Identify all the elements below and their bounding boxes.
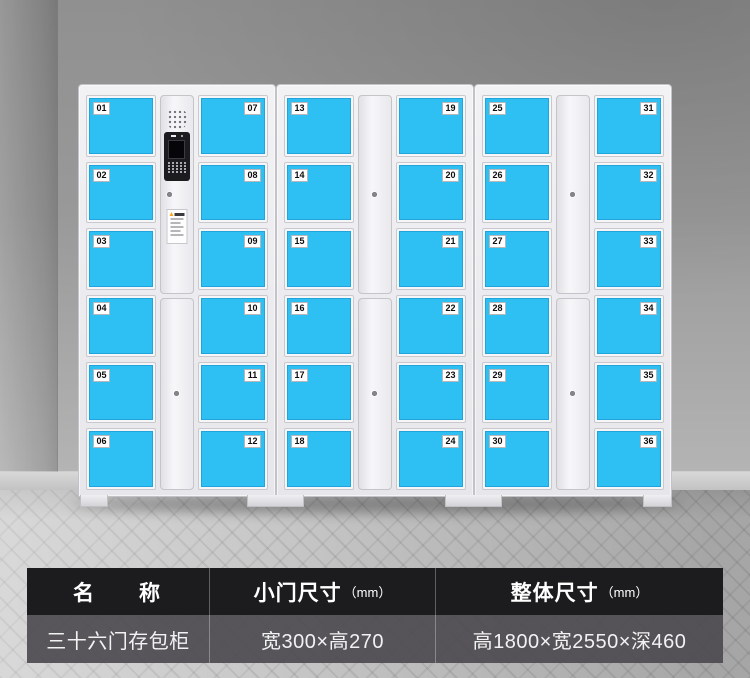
spec-value-row: 三十六门存包柜 宽300×高270 高1800×宽2550×深460 — [27, 615, 723, 663]
locker-door: 16 — [284, 295, 354, 357]
keypad-dot — [172, 165, 174, 167]
door-number-plate: 08 — [244, 169, 261, 182]
door-number-plate: 18 — [291, 435, 308, 448]
keypad-dot — [172, 162, 174, 164]
locker-door: 01 — [86, 95, 156, 157]
door-number-plate: 02 — [93, 169, 110, 182]
keypad-dot — [176, 168, 178, 170]
door-face: 24 — [399, 431, 463, 487]
keypad-dot — [168, 162, 170, 164]
door-column: 010203040506 — [86, 95, 156, 490]
door-face: 10 — [201, 298, 265, 354]
center-door-upper — [358, 95, 392, 294]
locker-door: 04 — [86, 295, 156, 357]
door-column: 192021222324 — [396, 95, 466, 490]
label-text-line — [171, 230, 181, 232]
door-number-plate: 14 — [291, 169, 308, 182]
door-face: 32 — [597, 165, 661, 221]
locker-door: 09 — [198, 228, 268, 290]
lock-icon — [174, 391, 179, 396]
locker-foot — [80, 495, 108, 507]
label-text-line — [171, 226, 184, 228]
spec-value-overall-size: 高1800×宽2550×深460 — [435, 615, 723, 663]
locker-door: 15 — [284, 228, 354, 290]
door-number-plate: 21 — [442, 235, 459, 248]
door-face: 11 — [201, 365, 265, 421]
locker-door: 33 — [594, 228, 664, 290]
door-face: 05 — [89, 365, 153, 421]
locker-door: 10 — [198, 295, 268, 357]
door-number-plate: 27 — [489, 235, 506, 248]
locker-door: 25 — [482, 95, 552, 157]
door-column: 252627282930 — [482, 95, 552, 490]
center-door-upper — [556, 95, 590, 294]
locker-shadow — [70, 496, 684, 513]
door-number-plate: 16 — [291, 302, 308, 315]
door-face: 08 — [201, 165, 265, 221]
locker-foot — [643, 495, 672, 507]
keypad-dot — [176, 165, 178, 167]
door-number-plate: 11 — [244, 369, 261, 382]
door-column: 131415161718 — [284, 95, 354, 490]
keypad-dot — [184, 168, 186, 170]
door-face: 27 — [485, 231, 549, 287]
door-number-plate: 35 — [640, 369, 657, 382]
door-number-plate: 13 — [291, 102, 308, 115]
locker-door: 21 — [396, 228, 466, 290]
keypad-dot — [172, 171, 174, 173]
center-door-lower — [160, 298, 194, 490]
locker-door: 07 — [198, 95, 268, 157]
door-column: 070809101112 — [198, 95, 268, 490]
indicator-light-icon — [167, 135, 187, 138]
door-number-plate: 15 — [291, 235, 308, 248]
lock-icon — [570, 391, 575, 396]
keypad-dot — [168, 168, 170, 170]
locker-door: 27 — [482, 228, 552, 290]
spec-header-door-size-unit: （mm） — [344, 582, 392, 601]
product-photo: 0102030405060708091011121314151617181920… — [0, 0, 750, 678]
display-screen — [168, 140, 185, 159]
center-door-lower — [556, 298, 590, 490]
locker-door: 30 — [482, 428, 552, 490]
door-face: 25 — [485, 98, 549, 154]
locker-door: 14 — [284, 162, 354, 224]
locker-cabinet: 252627282930313233343536 — [474, 84, 672, 497]
locker-door: 12 — [198, 428, 268, 490]
warning-icon — [170, 212, 185, 216]
center-column — [556, 95, 590, 490]
center-column — [358, 95, 392, 490]
door-face: 22 — [399, 298, 463, 354]
door-face: 04 — [89, 298, 153, 354]
door-face: 28 — [485, 298, 549, 354]
door-number-plate: 19 — [442, 102, 459, 115]
door-number-plate: 01 — [93, 102, 110, 115]
door-face: 26 — [485, 165, 549, 221]
door-number-plate: 29 — [489, 369, 506, 382]
door-face: 23 — [399, 365, 463, 421]
door-face: 34 — [597, 298, 661, 354]
spec-header-door-size: 小门尺寸（mm） — [209, 568, 435, 615]
door-face: 20 — [399, 165, 463, 221]
door-face: 14 — [287, 165, 351, 221]
wall-corner — [0, 0, 58, 474]
door-number-plate: 30 — [489, 435, 506, 448]
center-door-lower — [358, 298, 392, 490]
door-number-plate: 17 — [291, 369, 308, 382]
locker-cabinets: 0102030405060708091011121314151617181920… — [78, 84, 672, 497]
door-face: 33 — [597, 231, 661, 287]
door-face: 06 — [89, 431, 153, 487]
door-face: 13 — [287, 98, 351, 154]
door-face: 31 — [597, 98, 661, 154]
locker-door: 32 — [594, 162, 664, 224]
door-face: 30 — [485, 431, 549, 487]
spec-header-name-label: 名 称 — [73, 577, 161, 607]
locker-door: 17 — [284, 362, 354, 424]
label-text-line — [171, 222, 181, 224]
keypad-terminal — [164, 132, 190, 181]
control-panel — [160, 95, 194, 294]
locker-door: 34 — [594, 295, 664, 357]
instruction-label — [167, 209, 188, 244]
locker-door: 23 — [396, 362, 466, 424]
locker-door: 05 — [86, 362, 156, 424]
door-number-plate: 31 — [640, 102, 657, 115]
door-face: 19 — [399, 98, 463, 154]
door-number-plate: 25 — [489, 102, 506, 115]
door-number-plate: 04 — [93, 302, 110, 315]
locker-cabinet: 131415161718192021222324 — [276, 84, 474, 497]
spec-value-name: 三十六门存包柜 — [27, 615, 209, 663]
door-face: 17 — [287, 365, 351, 421]
locker-door: 22 — [396, 295, 466, 357]
spec-header-row: 名 称 小门尺寸（mm） 整体尺寸（mm） — [27, 568, 723, 615]
door-number-plate: 36 — [640, 435, 657, 448]
locker-door: 08 — [198, 162, 268, 224]
lock-icon — [372, 391, 377, 396]
spec-header-overall-size-label: 整体尺寸 — [511, 577, 599, 607]
keypad-dot — [184, 171, 186, 173]
door-face: 01 — [89, 98, 153, 154]
keypad-dot — [168, 165, 170, 167]
door-number-plate: 12 — [244, 435, 261, 448]
door-face: 02 — [89, 165, 153, 221]
door-face: 12 — [201, 431, 265, 487]
locker-foot — [445, 495, 502, 507]
locker-door: 20 — [396, 162, 466, 224]
keypad-dot — [180, 162, 182, 164]
speaker-grille-icon — [166, 108, 188, 130]
door-face: 09 — [201, 231, 265, 287]
keypad-dot — [180, 171, 182, 173]
door-number-plate: 03 — [93, 235, 110, 248]
keypad-dot — [176, 171, 178, 173]
label-text-line — [171, 234, 184, 236]
locker-door: 24 — [396, 428, 466, 490]
locker-door: 36 — [594, 428, 664, 490]
keypad-dot — [168, 171, 170, 173]
locker-door: 28 — [482, 295, 552, 357]
door-number-plate: 22 — [442, 302, 459, 315]
door-number-plate: 09 — [244, 235, 261, 248]
door-number-plate: 24 — [442, 435, 459, 448]
spec-header-overall-size: 整体尺寸（mm） — [435, 568, 723, 615]
center-column — [160, 95, 194, 490]
door-number-plate: 05 — [93, 369, 110, 382]
label-text-line — [171, 218, 184, 220]
locker-door: 03 — [86, 228, 156, 290]
spec-value-door-size: 宽300×高270 — [209, 615, 435, 663]
door-number-plate: 23 — [442, 369, 459, 382]
locker-door: 19 — [396, 95, 466, 157]
door-column: 313233343536 — [594, 95, 664, 490]
door-face: 16 — [287, 298, 351, 354]
locker-foot — [247, 495, 304, 507]
door-face: 15 — [287, 231, 351, 287]
keypad-dot — [184, 162, 186, 164]
door-face: 18 — [287, 431, 351, 487]
keypad-dot — [184, 165, 186, 167]
locker-door: 18 — [284, 428, 354, 490]
door-face: 03 — [89, 231, 153, 287]
door-face: 35 — [597, 365, 661, 421]
locker-door: 29 — [482, 362, 552, 424]
door-number-plate: 28 — [489, 302, 506, 315]
door-number-plate: 20 — [442, 169, 459, 182]
lock-icon — [570, 192, 575, 197]
locker-door: 31 — [594, 95, 664, 157]
door-number-plate: 07 — [244, 102, 261, 115]
locker-cabinet: 010203040506070809101112 — [78, 84, 276, 497]
locker-door: 06 — [86, 428, 156, 490]
door-number-plate: 33 — [640, 235, 657, 248]
door-face: 07 — [201, 98, 265, 154]
keypad — [167, 162, 187, 173]
door-number-plate: 34 — [640, 302, 657, 315]
locker-door: 35 — [594, 362, 664, 424]
locker-door: 11 — [198, 362, 268, 424]
locker-door: 26 — [482, 162, 552, 224]
door-number-plate: 26 — [489, 169, 506, 182]
door-number-plate: 32 — [640, 169, 657, 182]
keypad-dot — [180, 165, 182, 167]
keypad-dot — [176, 162, 178, 164]
spec-header-overall-size-unit: （mm） — [601, 582, 649, 601]
locker-door: 13 — [284, 95, 354, 157]
door-face: 21 — [399, 231, 463, 287]
door-face: 36 — [597, 431, 661, 487]
spec-header-name: 名 称 — [27, 568, 209, 615]
keypad-dot — [172, 168, 174, 170]
lock-icon — [372, 192, 377, 197]
door-number-plate: 06 — [93, 435, 110, 448]
door-number-plate: 10 — [244, 302, 261, 315]
door-face: 29 — [485, 365, 549, 421]
keypad-dot — [180, 168, 182, 170]
lock-icon — [167, 192, 172, 197]
locker-door: 02 — [86, 162, 156, 224]
spec-table: 名 称 小门尺寸（mm） 整体尺寸（mm） 三十六门存包柜 宽300×高270 … — [27, 568, 723, 663]
spec-header-door-size-label: 小门尺寸 — [254, 577, 342, 607]
